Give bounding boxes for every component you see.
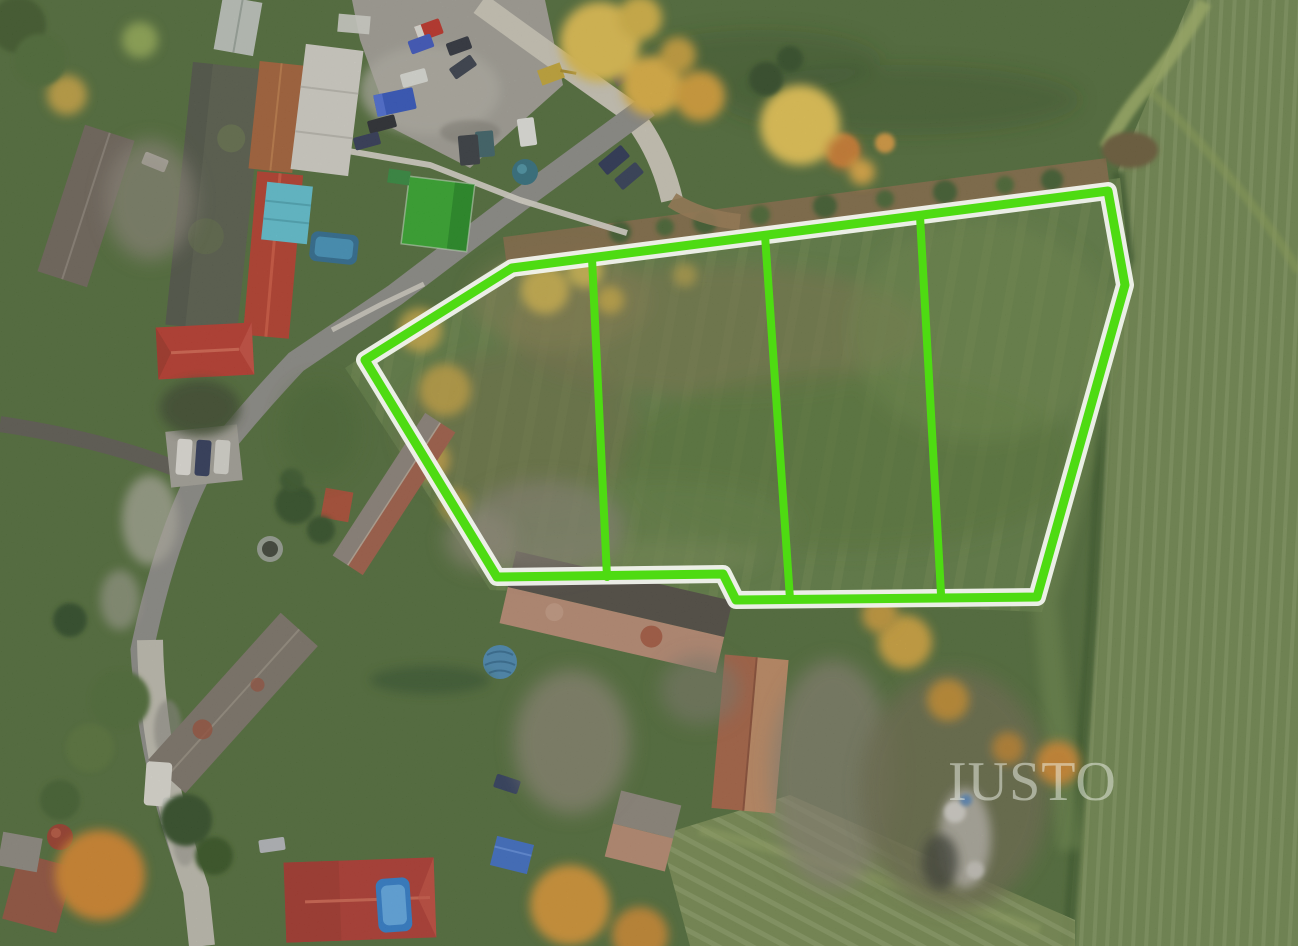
- watermark-text: IUSTO: [948, 750, 1117, 814]
- aerial-photo: IUSTO: [0, 0, 1298, 946]
